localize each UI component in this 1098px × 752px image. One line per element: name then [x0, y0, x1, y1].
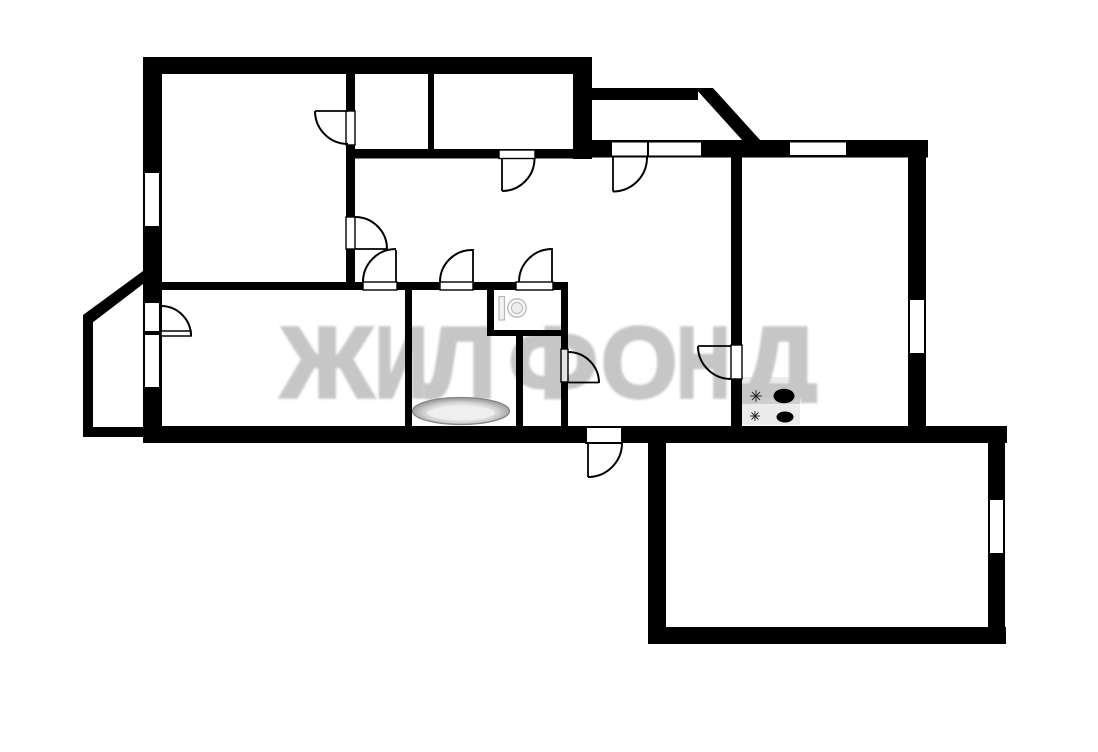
svg-text:О: О: [601, 306, 677, 418]
svg-text:И: И: [375, 307, 427, 419]
svg-text:Ж: Ж: [280, 308, 374, 419]
